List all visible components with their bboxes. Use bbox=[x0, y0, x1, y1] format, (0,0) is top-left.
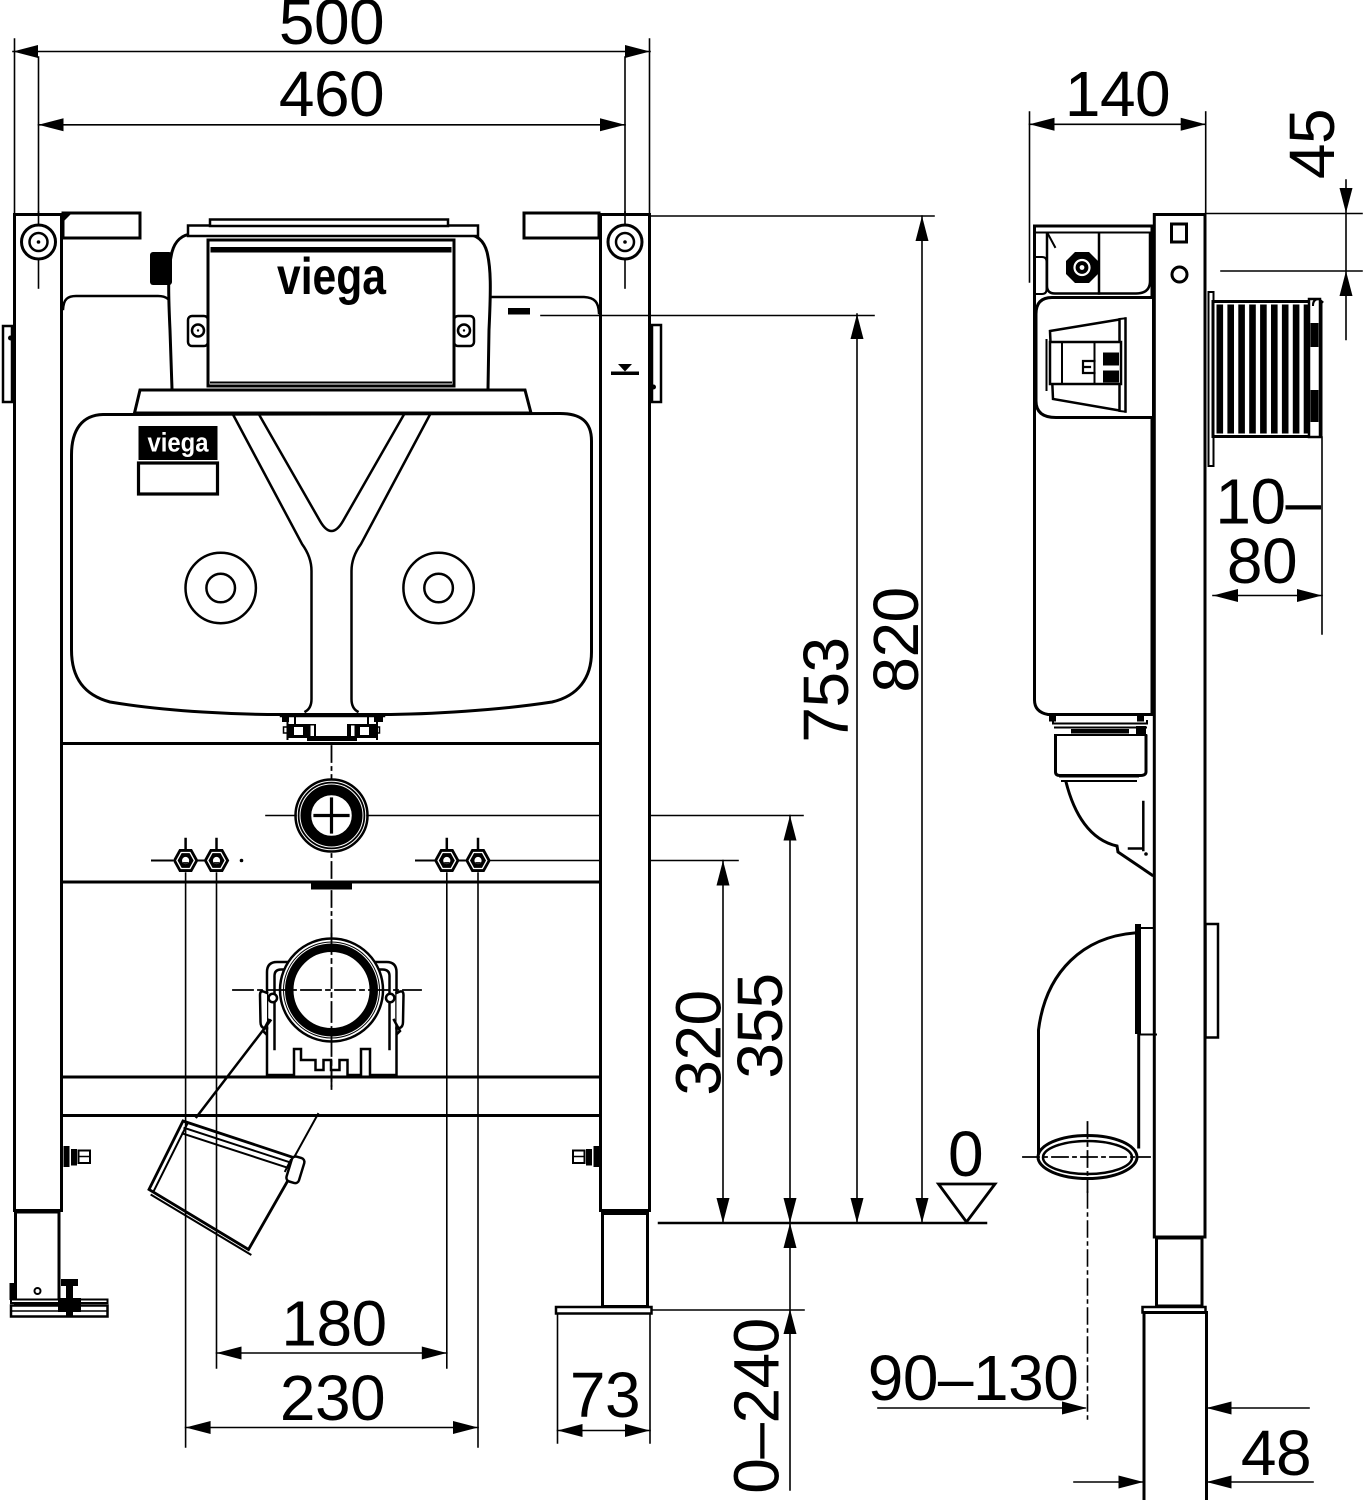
svg-text:viega: viega bbox=[148, 428, 209, 458]
svg-text:80: 80 bbox=[1227, 525, 1297, 597]
svg-text:753: 753 bbox=[790, 637, 862, 742]
svg-text:180: 180 bbox=[281, 1288, 386, 1360]
svg-text:48: 48 bbox=[1241, 1417, 1311, 1489]
svg-text:45: 45 bbox=[1276, 109, 1348, 179]
svg-text:0: 0 bbox=[948, 1118, 983, 1190]
svg-text:viega: viega bbox=[277, 248, 387, 306]
svg-text:355: 355 bbox=[724, 973, 796, 1078]
svg-text:140: 140 bbox=[1065, 58, 1170, 130]
svg-text:230: 230 bbox=[280, 1362, 385, 1434]
svg-text:0–240: 0–240 bbox=[721, 1318, 793, 1493]
svg-text:500: 500 bbox=[279, 0, 384, 58]
svg-text:73: 73 bbox=[570, 1359, 640, 1431]
svg-text:460: 460 bbox=[279, 58, 384, 130]
svg-text:90–130: 90–130 bbox=[868, 1342, 1079, 1414]
